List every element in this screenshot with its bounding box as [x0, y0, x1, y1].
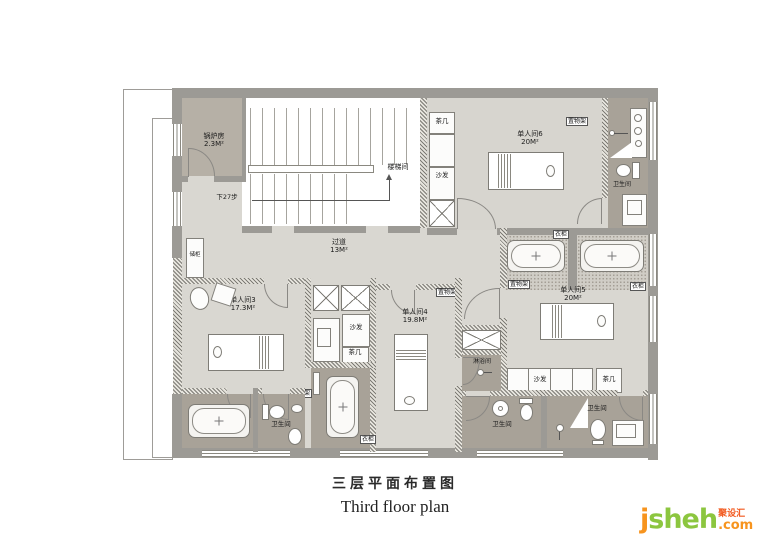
bed-lamp [546, 165, 555, 177]
wall-top [177, 88, 658, 98]
sink [627, 200, 642, 215]
shelf-tag: 置物架 [566, 117, 588, 126]
tea-table-label: 茶几 [436, 118, 449, 125]
wardrobe-box [341, 285, 370, 311]
bathroom-label: 卫生间 [271, 421, 291, 428]
room5-door-leaf [499, 288, 500, 319]
toilet-tank [632, 162, 640, 179]
toilet-bowl [269, 405, 285, 419]
room-name: 过道 [330, 238, 348, 246]
bed-lamp [597, 315, 606, 327]
bath-zone-divider [568, 228, 577, 290]
bed-pillow [396, 350, 426, 361]
basin [634, 127, 642, 135]
stair-path-horizontal [252, 200, 390, 201]
wall-left-pier [172, 394, 182, 458]
room3-top-wall [288, 278, 305, 284]
stair-bottom-wall [242, 226, 272, 233]
toilet-bowl [520, 404, 533, 421]
wall-left-pier [172, 226, 182, 258]
window [649, 296, 657, 342]
boiler-room-label: 锅炉房 2.3M² [204, 132, 225, 148]
logo-name: sheh [648, 506, 717, 534]
bathroom-label: 卫生间 [587, 405, 607, 412]
bathtub-inner [584, 244, 640, 268]
room-area: 20M² [517, 138, 542, 146]
room-area: 17.3M² [230, 304, 255, 312]
room-area: 13M² [330, 246, 348, 254]
wardrobe-box [462, 330, 501, 350]
room3-top-wall [182, 278, 264, 284]
wall-room4-corr [455, 278, 462, 358]
wardrobe-tag: 衣柜 [630, 282, 646, 291]
bathtub-inner [511, 244, 561, 268]
stair-path-vertical [389, 180, 390, 200]
sofa [429, 134, 455, 167]
towel-bar [614, 133, 628, 134]
bed-pillow [552, 305, 563, 338]
toilet-tank [592, 440, 604, 445]
stair-arrow-up [386, 174, 392, 180]
floor-plan-page: 锅炉房 2.3M² 储柜 下27步 楼梯间 过道 13M² 茶几 沙发 单人间6… [0, 0, 770, 544]
sofa-label: 沙发 [436, 172, 449, 179]
window [340, 450, 428, 457]
room-name: 单人间3 [230, 296, 255, 304]
window [202, 450, 290, 457]
page-title-zh: 三层平面布置图 [245, 473, 545, 493]
room6-label: 单人间6 20M² [517, 130, 542, 146]
shower-arm [484, 372, 492, 373]
boiler-wall [214, 176, 242, 182]
room5-label: 单人间5 20M² [560, 286, 585, 302]
room3-label: 单人间3 17.3M² [230, 296, 255, 312]
window [649, 394, 657, 444]
bathtub [507, 240, 565, 272]
stair-wall [242, 98, 246, 182]
wardrobe-box [313, 285, 339, 311]
room-name: 单人间6 [517, 130, 542, 138]
room-area: 19.8M² [402, 316, 427, 324]
sink [291, 404, 303, 413]
room4-label: 单人间4 19.8M² [402, 308, 427, 324]
wardrobe-tag: 衣柜 [553, 230, 569, 239]
room-area: 2.3M² [204, 140, 225, 148]
toilet-bowl [288, 428, 302, 445]
window [173, 124, 181, 156]
bathroom-label: 卫生间 [492, 421, 512, 428]
shelf-tag: 置物架 [508, 280, 530, 289]
title-block: 三层平面布置图 Third floor plan [245, 473, 545, 517]
basin [635, 140, 642, 147]
window [477, 450, 563, 457]
room-name: 单人间5 [560, 286, 585, 294]
basin-drain [498, 406, 503, 411]
wardrobe-box [429, 200, 455, 227]
window [649, 234, 657, 286]
toilet-bowl [590, 419, 606, 440]
wall-room3-block [305, 278, 311, 368]
window [173, 192, 181, 226]
bed-pillow [498, 154, 511, 188]
shelf [313, 372, 320, 395]
dressing-sink [317, 328, 331, 347]
bed-pillow [259, 336, 271, 369]
sofa-label: 沙发 [350, 324, 363, 331]
wall-stair-room6 [420, 98, 427, 228]
bathtub [326, 376, 359, 438]
stair-bottom-wall [294, 226, 366, 233]
bathtub-inner [192, 408, 246, 434]
wall-left-hatched [173, 258, 182, 394]
room4-top-wall [376, 284, 390, 290]
wall-corridor-room5 [500, 228, 507, 288]
stair-treads-upper [250, 108, 416, 165]
basin [634, 114, 642, 122]
stairs-note: 下27步 [216, 194, 237, 201]
wall-left-pier [172, 156, 182, 192]
logo-suffix: .com [718, 519, 753, 532]
room-name: 锅炉房 [204, 132, 225, 140]
bed-lamp [404, 396, 415, 405]
window [649, 102, 657, 160]
stair-handrail [248, 165, 374, 173]
logo-letter-j: j [640, 506, 648, 534]
toilet-tank [262, 404, 269, 420]
bed-lamp [213, 346, 222, 358]
bathtub [580, 240, 644, 272]
tea-table-label: 茶几 [603, 376, 616, 383]
toilet-bowl [616, 164, 631, 177]
shower-head [556, 424, 564, 432]
bathtub [188, 404, 250, 438]
wall-room4-corr [455, 386, 462, 452]
room-name: 单人间4 [402, 308, 427, 316]
room-area: 20M² [560, 294, 585, 302]
wall-left-pier [172, 88, 182, 124]
corridor-label: 过道 13M² [330, 238, 348, 254]
sofa-label: 沙发 [534, 376, 547, 383]
bathroom-label: 卫生间 [613, 181, 631, 188]
page-title-en: Third floor plan [245, 497, 545, 517]
shower-stem [559, 432, 560, 440]
sink [616, 424, 636, 438]
wardrobe-tag: 衣柜 [360, 435, 376, 444]
cabinet-label: 储柜 [189, 252, 200, 259]
tea-table-label: 茶几 [349, 349, 362, 356]
stair-treads-lower [250, 174, 354, 224]
bathtub-inner [330, 380, 355, 434]
stair-bottom-wall [388, 226, 420, 233]
room6-bottom-wall [427, 228, 457, 235]
stairwell-label: 楼梯间 [388, 163, 409, 171]
site-logo[interactable]: jsheh 聚设汇 .com [640, 506, 753, 534]
